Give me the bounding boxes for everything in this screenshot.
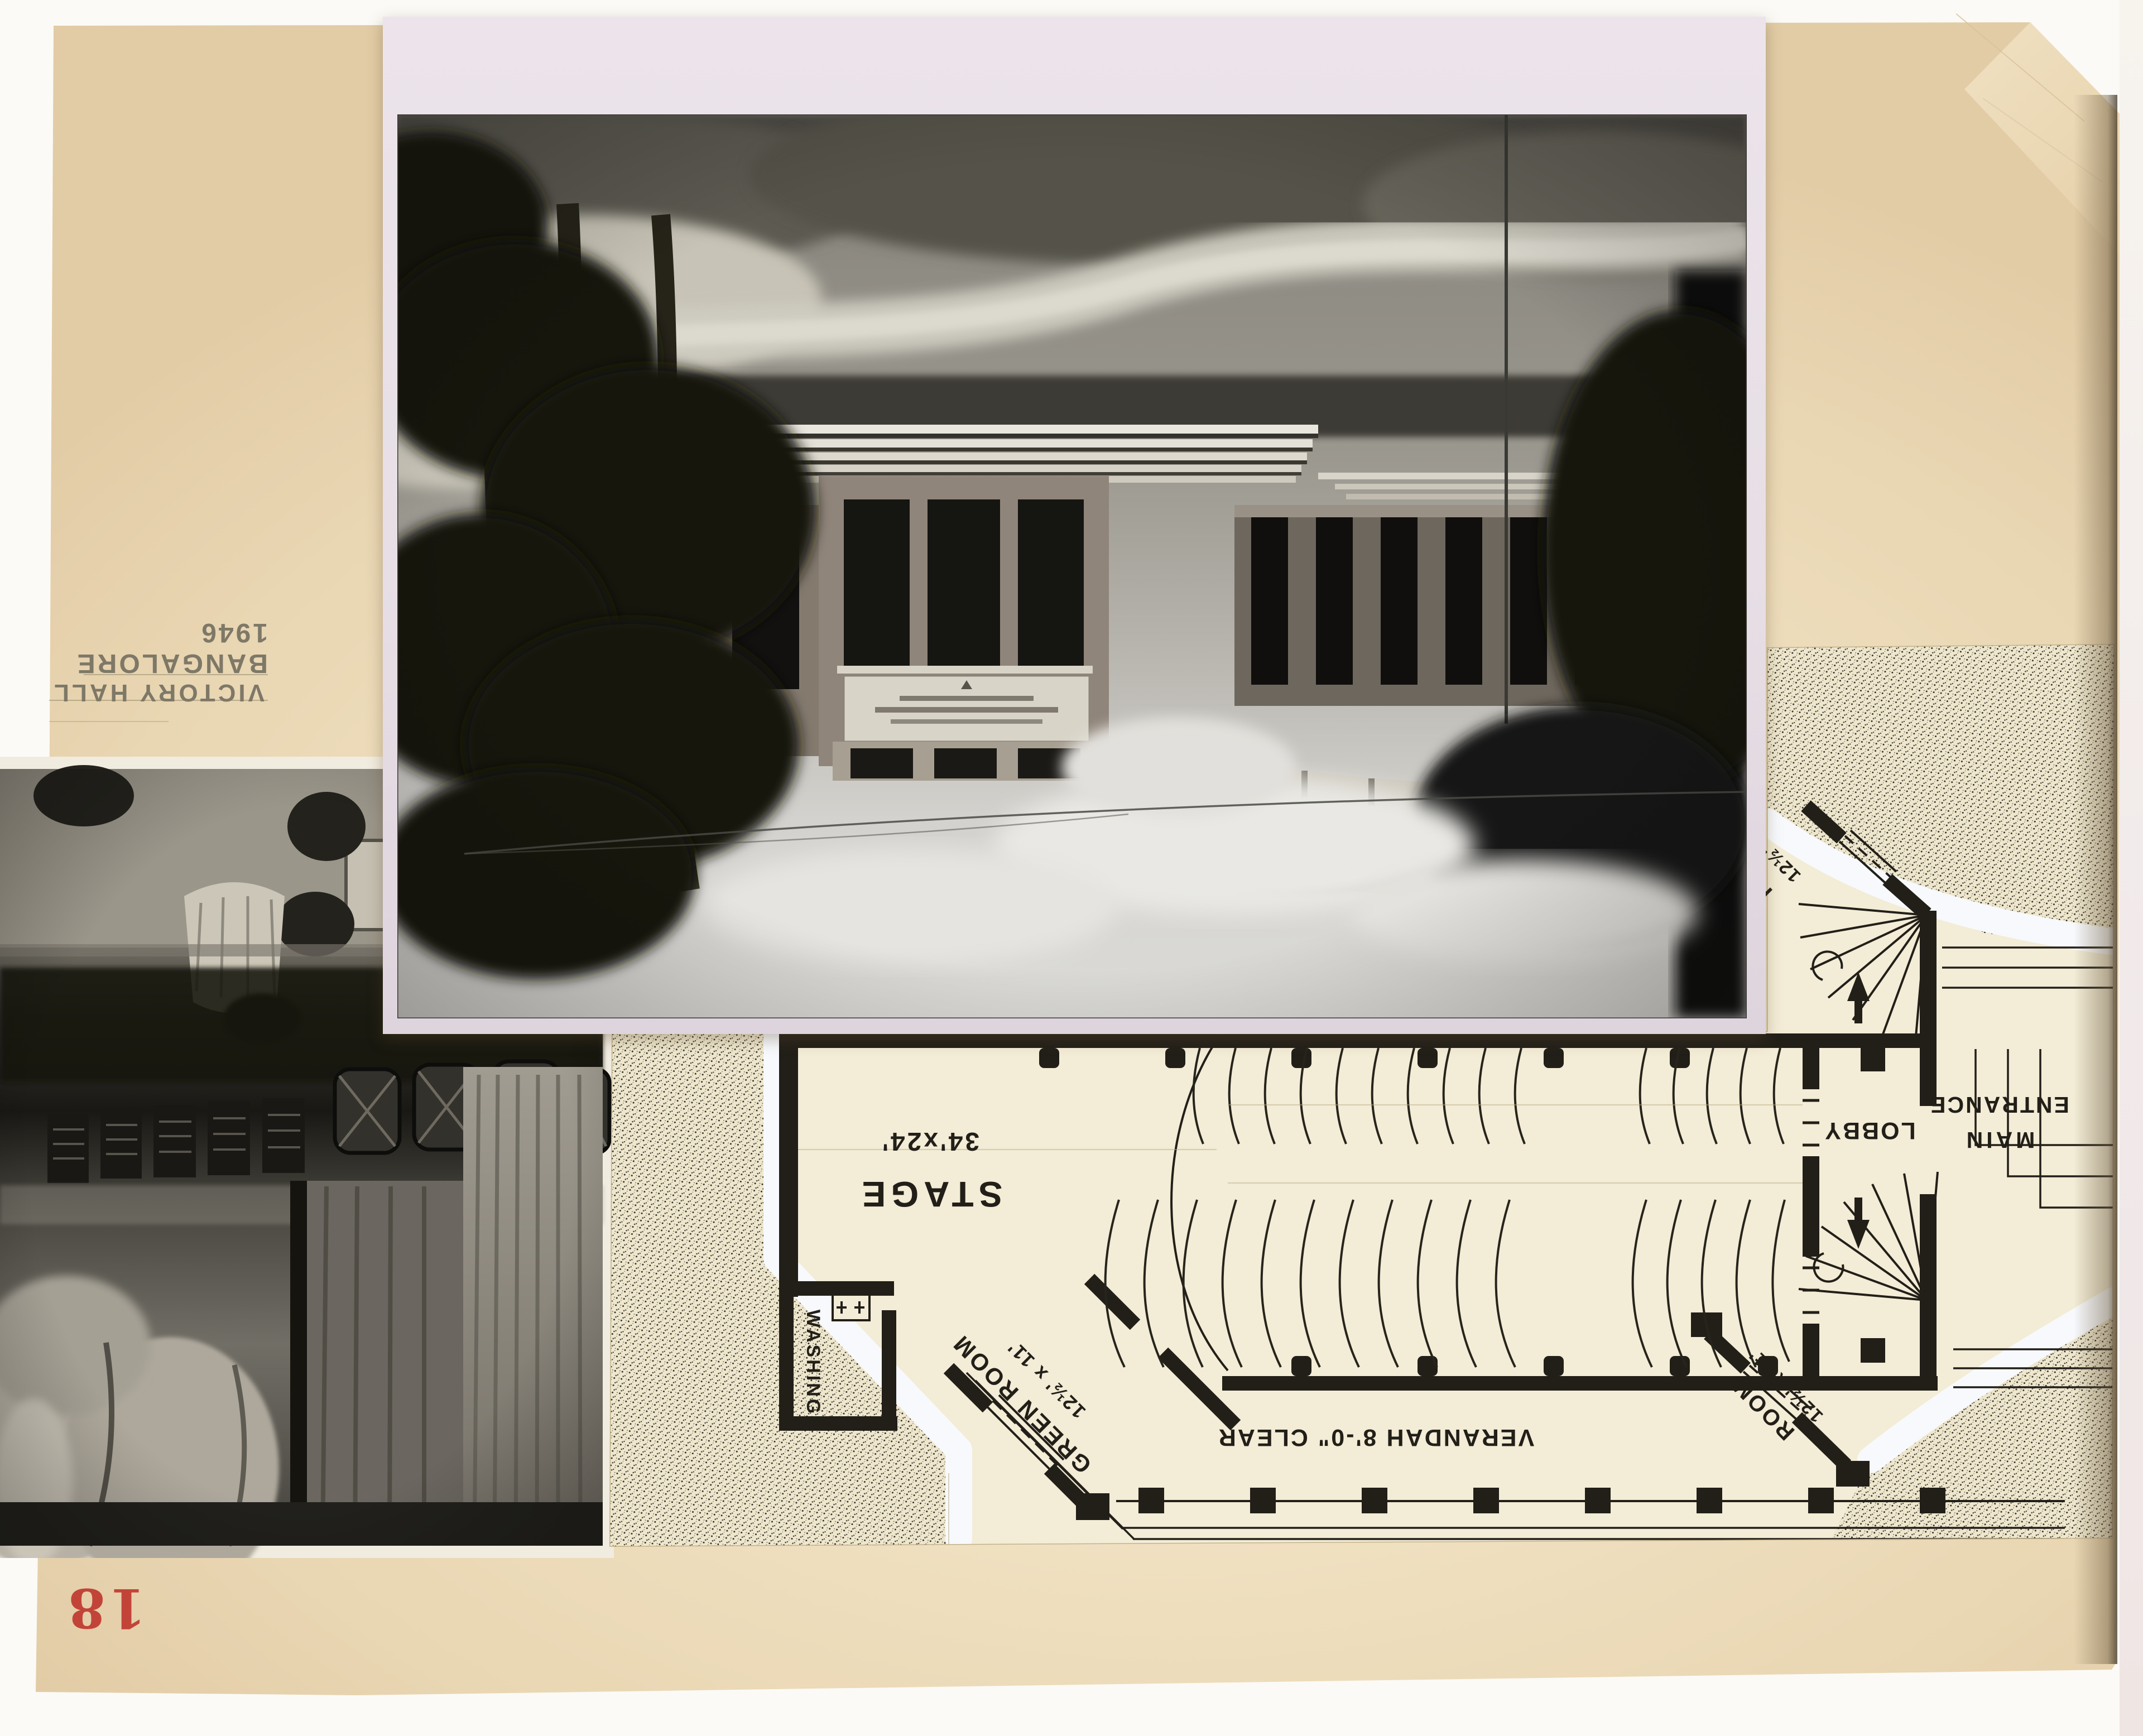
- plan-label-verandah: VERANDAH 8'-0" CLEAR: [1194, 1416, 1557, 1452]
- page-edge-shadow: [2074, 95, 2117, 1664]
- plan-label-stage: STAGE 34'x24': [818, 1110, 1041, 1216]
- plan-label-lobby: LOBBY: [1808, 1112, 1931, 1145]
- scanned-album-page: VICTORY HALL BANGALORE 1946 18: [0, 0, 2143, 1736]
- washing-fixture-icon: [833, 1295, 869, 1320]
- exterior-photograph: [397, 114, 1747, 1018]
- facing-page-strip: [2120, 0, 2143, 1736]
- plan-label-main-entrance: MAIN ENTRANCE: [1921, 1076, 2077, 1154]
- exterior-photo-mount: [383, 17, 1766, 1034]
- plan-label-washing: WASHING: [791, 1296, 825, 1430]
